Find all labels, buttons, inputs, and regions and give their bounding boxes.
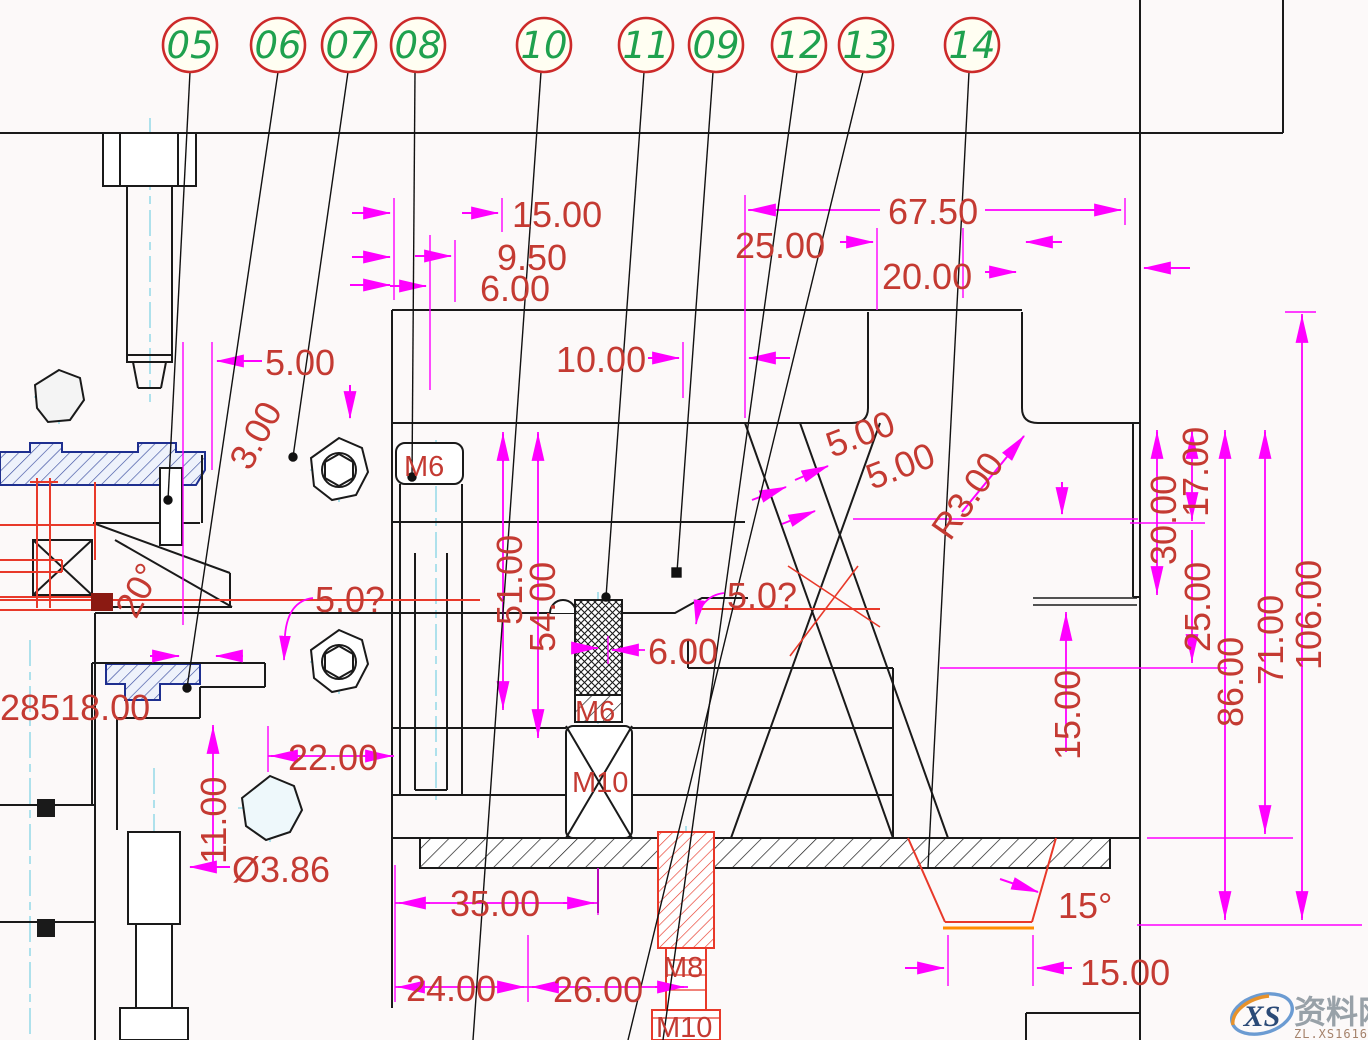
dim-22: 22.00 bbox=[288, 737, 378, 778]
dim-3: 3.00 bbox=[221, 395, 290, 476]
balloon-06-number: 06 bbox=[254, 24, 301, 67]
dim-26: 26.00 bbox=[553, 969, 643, 1010]
balloon-14-number: 14 bbox=[948, 24, 995, 67]
bottom-left-bolt bbox=[120, 832, 188, 1040]
cad-drawing-canvas: 05 06 07 08 10 11 09 12 13 14 15.00 9.50… bbox=[0, 0, 1368, 1040]
dim-17: 17.00 bbox=[1175, 427, 1216, 517]
dim-86: 86.00 bbox=[1210, 637, 1251, 727]
balloon-08-number: 08 bbox=[394, 24, 441, 67]
thread-labels: M6 M6 M10 M8 M10 bbox=[404, 451, 712, 1040]
dim-25-top: 25.00 bbox=[735, 225, 825, 266]
dim-71: 71.00 bbox=[1250, 595, 1291, 685]
long-bolt bbox=[396, 443, 463, 795]
dim-20-top: 20.00 bbox=[882, 256, 972, 297]
dim-67-50: 67.50 bbox=[888, 191, 978, 232]
dim-5q-left: 5.0? bbox=[315, 579, 385, 620]
mold-section-drawing: 05 06 07 08 10 11 09 12 13 14 15.00 9.50… bbox=[0, 0, 1368, 1040]
clamp-plate-hatched bbox=[420, 838, 1110, 868]
dim-15-top: 15.00 bbox=[512, 194, 602, 235]
dim-15-bot: 15.00 bbox=[1080, 952, 1170, 993]
balloon-05: 05 bbox=[163, 18, 217, 72]
dim-5q-right: 5.0? bbox=[727, 575, 797, 616]
dim-106: 106.00 bbox=[1288, 560, 1329, 670]
balloon-13: 13 bbox=[839, 18, 893, 72]
dim-54: 54.00 bbox=[522, 562, 563, 652]
dim-28518: 28518.00 bbox=[0, 687, 150, 728]
watermark-site-name: 资料网 bbox=[1294, 993, 1368, 1031]
balloon-11: 11 bbox=[619, 18, 673, 72]
watermark-site-url: ZL.XS1616.COM bbox=[1294, 1027, 1368, 1040]
watermark-logo: XS bbox=[1243, 1000, 1281, 1033]
balloon-10: 10 bbox=[517, 18, 571, 72]
dim-35: 35.00 bbox=[450, 883, 540, 924]
balloon-08: 08 bbox=[391, 18, 445, 72]
balloon-10-number: 10 bbox=[520, 24, 567, 67]
dim-r3: R3.00 bbox=[923, 444, 1012, 546]
balloon-09: 09 bbox=[689, 18, 743, 72]
balloon-12-number: 12 bbox=[775, 24, 822, 67]
dim-10: 10.00 bbox=[556, 339, 646, 380]
dim-6-mid: 6.00 bbox=[648, 631, 718, 672]
dim-5-left: 5.00 bbox=[265, 342, 335, 383]
thread-m10-bot: M10 bbox=[656, 1012, 712, 1040]
balloon-07: 07 bbox=[322, 18, 376, 72]
balloon-05-number: 05 bbox=[166, 24, 213, 67]
balloon-11-number: 11 bbox=[622, 24, 669, 67]
dim-dia-3-86: Ø3.86 bbox=[232, 849, 330, 890]
thread-m10-mid: M10 bbox=[572, 767, 628, 799]
balloon-13-number: 13 bbox=[842, 24, 889, 67]
balloon-14: 14 bbox=[945, 18, 999, 72]
thread-m6-mid: M6 bbox=[575, 696, 615, 728]
dim-15-right-v: 15.00 bbox=[1047, 670, 1088, 760]
thread-m8: M8 bbox=[663, 952, 703, 984]
red-screw-bottom bbox=[652, 832, 720, 1040]
dim-6-top: 6.00 bbox=[480, 268, 550, 309]
watermark: XS 资料网 ZL.XS1616.COM bbox=[1227, 987, 1368, 1040]
slide-mechanism-red bbox=[0, 478, 112, 610]
dim-15deg: 15° bbox=[1058, 885, 1112, 926]
balloon-07-number: 07 bbox=[325, 24, 373, 67]
thread-m6-top: M6 bbox=[404, 451, 444, 483]
dim-11: 11.00 bbox=[193, 777, 234, 864]
balloon-06: 06 bbox=[251, 18, 305, 72]
dim-24: 24.00 bbox=[406, 968, 496, 1009]
balloon-12: 12 bbox=[772, 18, 826, 72]
balloon-09-number: 09 bbox=[692, 24, 739, 67]
mold-plates-geometry bbox=[0, 0, 1283, 1040]
balloon-callouts: 05 06 07 08 10 11 09 12 13 14 bbox=[163, 18, 999, 72]
